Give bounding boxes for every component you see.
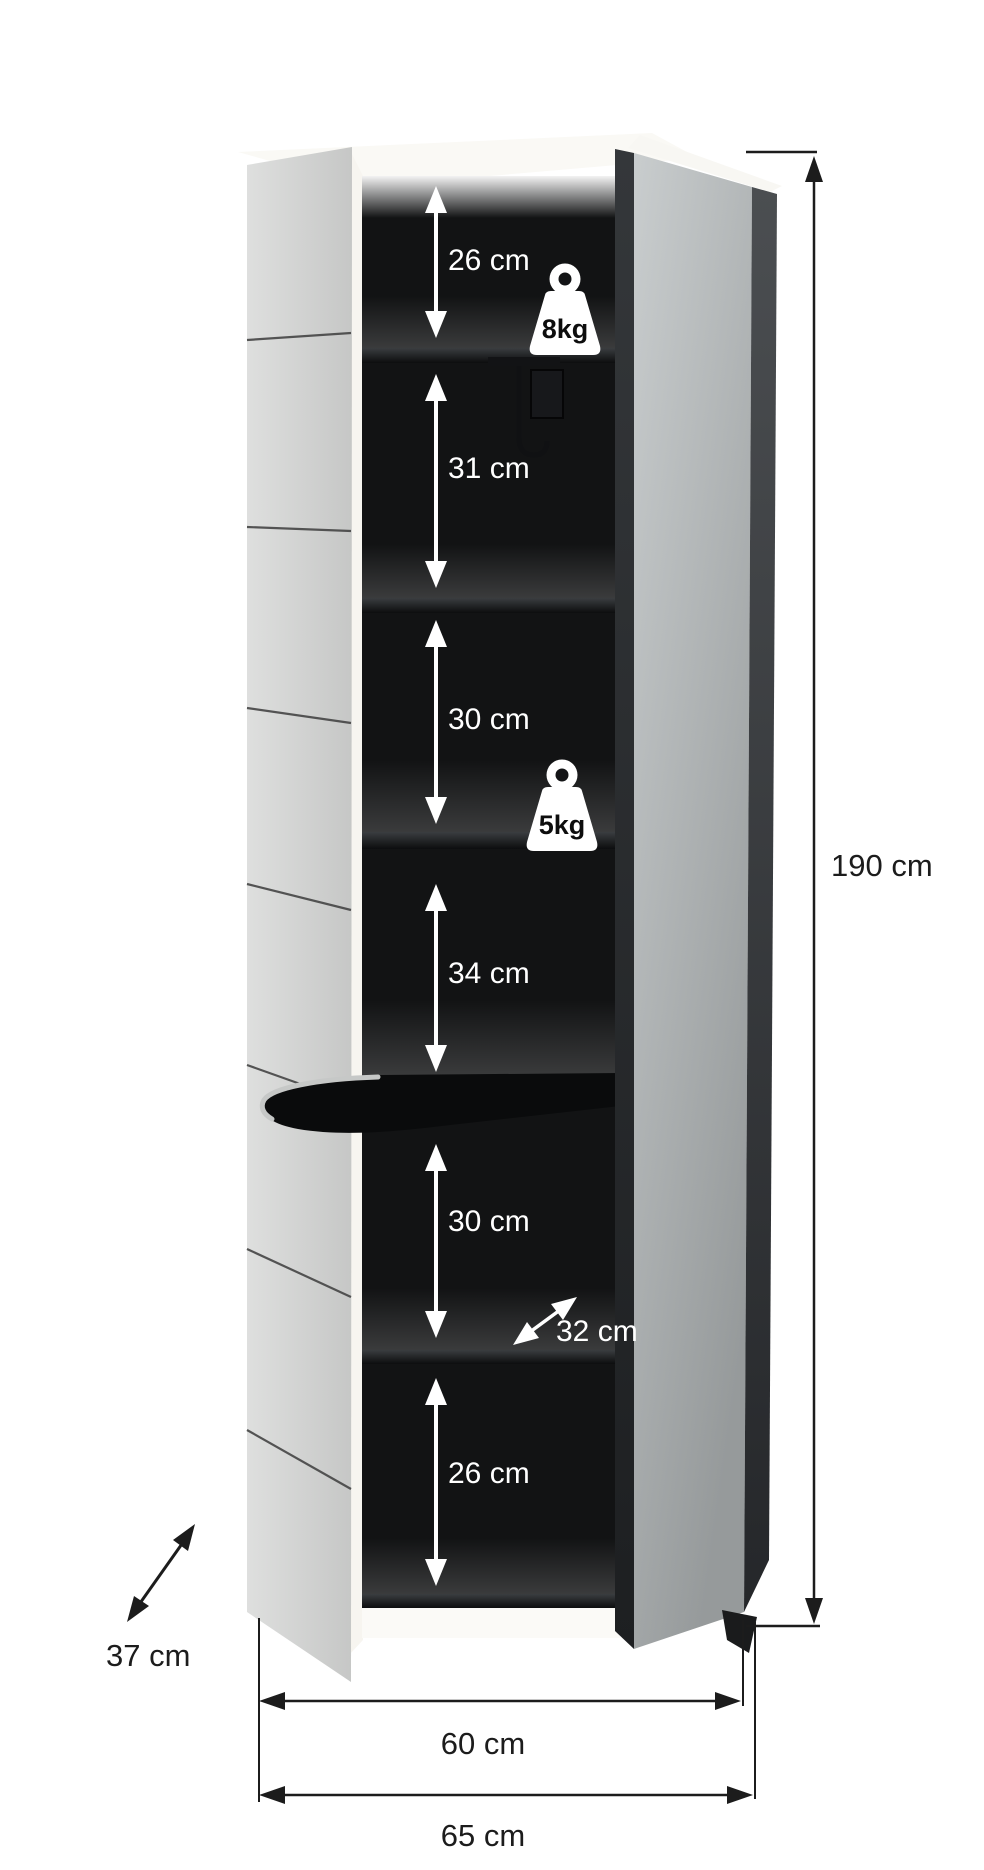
dim-label-compartment-1: 26 cm	[448, 244, 530, 277]
height-label: 190 cm	[831, 848, 933, 883]
load-label-mid: 5kg	[539, 810, 586, 840]
cabinet-plinth	[362, 1608, 620, 1638]
dim-label-compartment-4: 34 cm	[448, 957, 530, 990]
shelf	[362, 598, 620, 613]
depth-label: 37 cm	[106, 1638, 190, 1673]
cabinet-dimension-diagram: 8kg 5kg 26 cm 31 cm 30 cm 34 cm	[0, 0, 984, 1870]
total-width-dimension: 65 cm	[259, 1786, 753, 1853]
body-width-label: 60 cm	[441, 1726, 525, 1761]
dim-label-compartment-6: 26 cm	[448, 1457, 530, 1490]
mirror-door-face	[634, 153, 752, 1649]
cabinet-floor	[362, 1594, 620, 1608]
mirror-door-foot	[722, 1610, 757, 1653]
dim-label-compartment-3: 30 cm	[448, 703, 530, 736]
shelf-depth-label: 32 cm	[556, 1315, 638, 1348]
depth-dimension: 37 cm	[106, 1524, 195, 1673]
body-width-dimension: 60 cm	[259, 1692, 741, 1761]
cabinet-interior	[362, 176, 620, 1638]
right-mirror-door	[615, 149, 777, 1653]
mirror-door-inner-edge	[615, 149, 634, 1649]
dim-label-compartment-5: 30 cm	[448, 1205, 530, 1238]
diagram-stage: 8kg 5kg 26 cm 31 cm 30 cm 34 cm	[0, 0, 984, 1870]
load-label-top: 8kg	[542, 314, 589, 344]
total-width-label: 65 cm	[441, 1818, 525, 1853]
left-door	[247, 147, 352, 1682]
shelf	[362, 1350, 620, 1364]
dim-label-compartment-2: 31 cm	[448, 452, 530, 485]
